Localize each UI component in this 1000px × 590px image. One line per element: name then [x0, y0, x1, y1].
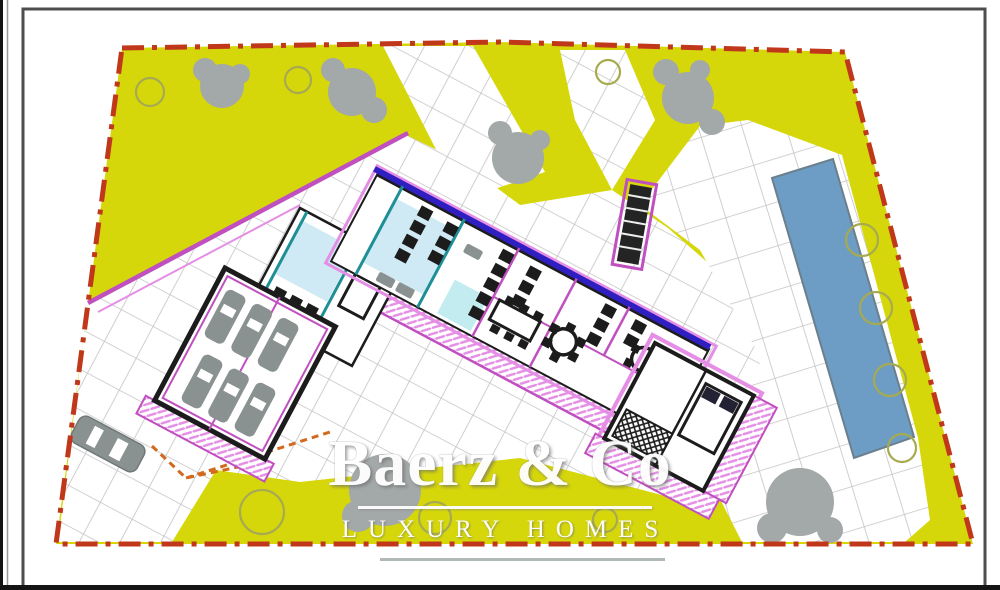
site-plan-drawing — [0, 0, 1000, 590]
watermark-rule-top — [358, 506, 652, 509]
watermark-rule-bottom — [380, 558, 665, 561]
site-plan-page: Baerz & Co LUXURY HOMES — [0, 0, 1000, 590]
